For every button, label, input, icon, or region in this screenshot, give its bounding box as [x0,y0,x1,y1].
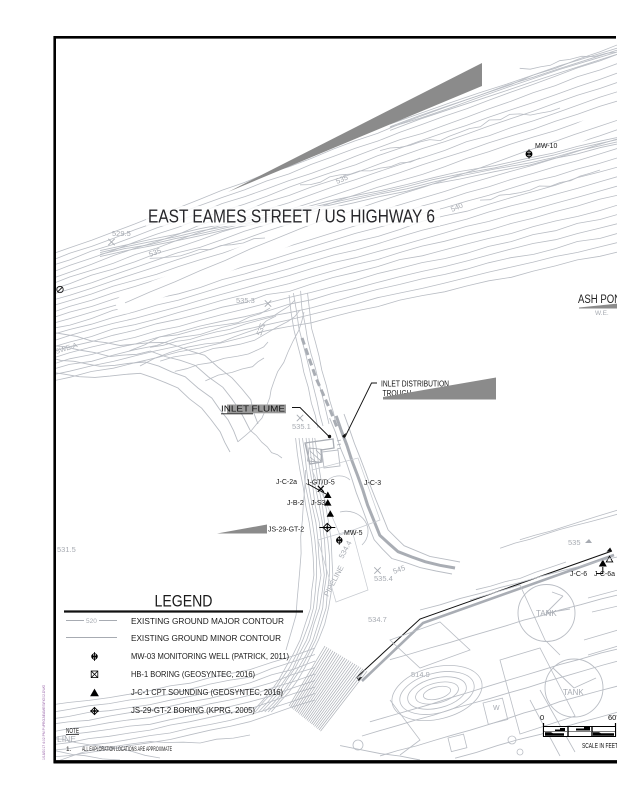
svg-text:535: 535 [568,538,581,547]
svg-text:520: 520 [86,618,97,625]
svg-text:SCALE IN FEET: SCALE IN FEET [582,741,618,750]
svg-text:531.5: 531.5 [57,545,76,554]
svg-text:J-C-6: J-C-6 [570,571,587,578]
svg-text:1/18/2017 4:02 PM P:\PROJ\EAME: 1/18/2017 4:02 PM P:\PROJ\EAMES\FIG02.DW… [42,684,46,760]
svg-text:EAST EAMES STREET / US HIGHW: EAST EAMES STREET / US HIGHWAY 6 [148,206,435,227]
svg-text:529.5: 529.5 [112,229,131,238]
svg-text:HB-1 BORING (GEOSYNTEC, 2016): HB-1 BORING (GEOSYNTEC, 2016) [131,670,255,679]
svg-text:534.7: 534.7 [368,615,387,624]
svg-text:JS-29-GT-2 BORING (KPRG, 2005): JS-29-GT-2 BORING (KPRG, 2005) [131,706,255,715]
svg-text:INLET DISTRIBUTION: INLET DISTRIBUTION [381,380,449,389]
svg-text:1.: 1. [66,746,72,753]
svg-text:MW-10: MW-10 [535,143,558,150]
svg-text:0: 0 [540,713,544,722]
svg-text:J-C-3: J-C-3 [364,480,381,487]
svg-text:535.1: 535.1 [292,422,311,431]
svg-text:NOTE: NOTE [66,726,79,735]
svg-text:ALL EXPLORATION LOCATIONS ARE: ALL EXPLORATION LOCATIONS ARE APPROXIMAT… [82,746,172,753]
svg-text:J-S3: J-S3 [311,500,326,507]
svg-text:JS-29-GT-2: JS-29-GT-2 [268,527,304,534]
svg-text:W.E.: W.E. [595,310,609,317]
svg-text:INLET FLUME: INLET FLUME [221,405,286,414]
svg-text:EXISTING GROUND MAJOR CONTOUR: EXISTING GROUND MAJOR CONTOUR [131,617,284,626]
svg-text:J-B-2: J-B-2 [287,500,304,507]
svg-text:MW-5: MW-5 [344,530,363,537]
svg-text:J-C-6a: J-C-6a [594,571,615,578]
svg-text:60': 60' [608,713,618,722]
svg-text:535.4: 535.4 [374,574,393,583]
svg-text:LEGEND: LEGEND [155,592,213,611]
svg-text:J-C-1 CPT SOUNDING (GEOSYNTEC,: J-C-1 CPT SOUNDING (GEOSYNTEC, 2016) [131,688,283,697]
svg-text:J-C-2a: J-C-2a [276,479,297,486]
svg-text:535.3: 535.3 [236,296,255,305]
svg-text:EXISTING GROUND MINOR CONTOUR: EXISTING GROUND MINOR CONTOUR [131,634,281,643]
svg-text:W: W [493,705,500,712]
svg-text:MW-03 MONITORING WELL (PATRICK: MW-03 MONITORING WELL (PATRICK, 2011) [131,652,289,661]
svg-text:LINE: LINE [57,734,76,744]
svg-text:TANK: TANK [536,609,557,618]
